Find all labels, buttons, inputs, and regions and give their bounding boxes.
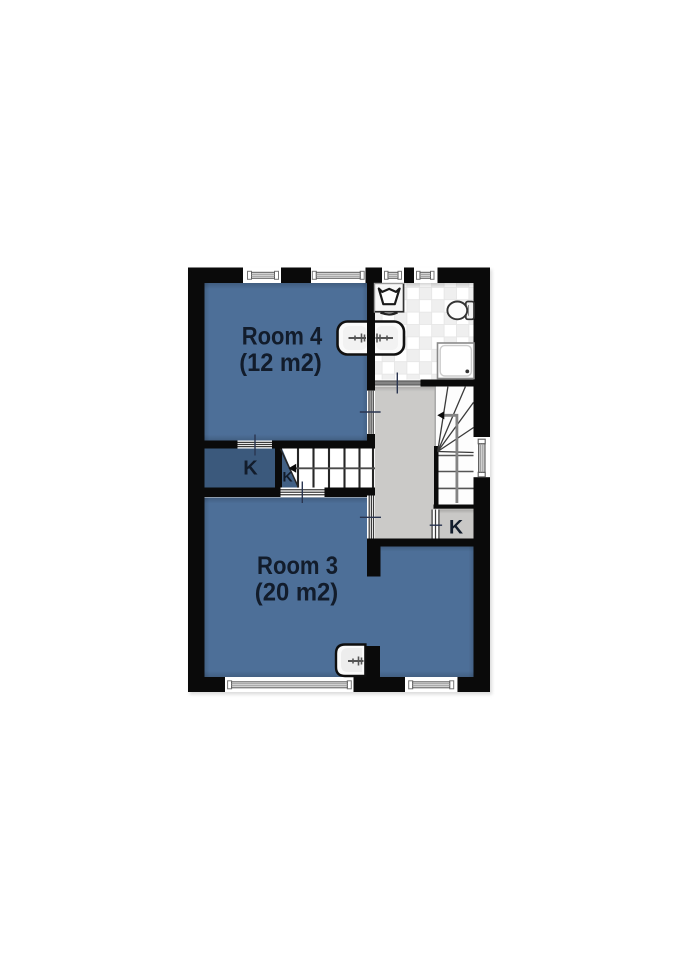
svg-text:(20 m2): (20 m2) <box>255 579 339 607</box>
svg-text:Room 3: Room 3 <box>257 552 338 580</box>
svg-text:K: K <box>282 469 292 485</box>
svg-text:(12 m2): (12 m2) <box>239 349 322 377</box>
svg-text:K: K <box>449 517 463 539</box>
svg-text:K: K <box>243 458 258 480</box>
svg-text:Room 4: Room 4 <box>242 323 323 351</box>
